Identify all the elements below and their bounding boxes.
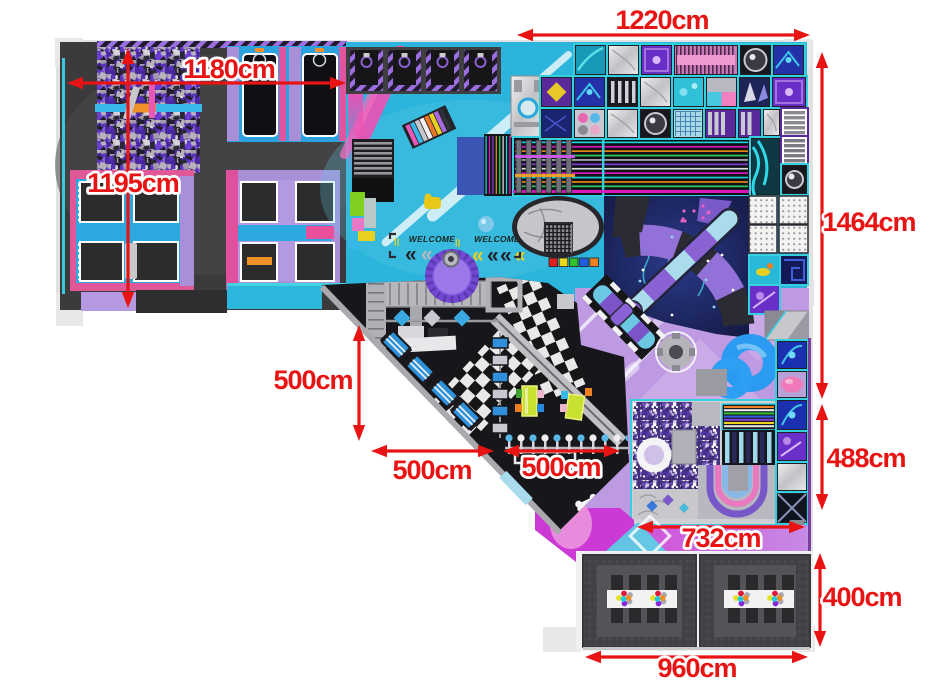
svg-text:«: « bbox=[500, 244, 512, 267]
svg-text:732cm: 732cm bbox=[681, 523, 760, 553]
svg-text:1195cm: 1195cm bbox=[87, 168, 179, 198]
svg-text:500cm: 500cm bbox=[392, 455, 471, 485]
svg-text:488cm: 488cm bbox=[826, 443, 905, 473]
svg-text:400cm: 400cm bbox=[822, 582, 901, 612]
svg-text:500cm: 500cm bbox=[521, 452, 600, 482]
svg-text:«: « bbox=[405, 243, 417, 266]
svg-text:WELCOME: WELCOME bbox=[474, 234, 520, 244]
svg-text:1180cm: 1180cm bbox=[183, 54, 275, 84]
svg-text:960cm: 960cm bbox=[657, 653, 736, 683]
svg-text:500cm: 500cm bbox=[273, 365, 352, 395]
svg-text:«: « bbox=[487, 244, 499, 267]
svg-text:1464cm: 1464cm bbox=[822, 207, 915, 237]
svg-text:1220cm: 1220cm bbox=[615, 5, 708, 35]
